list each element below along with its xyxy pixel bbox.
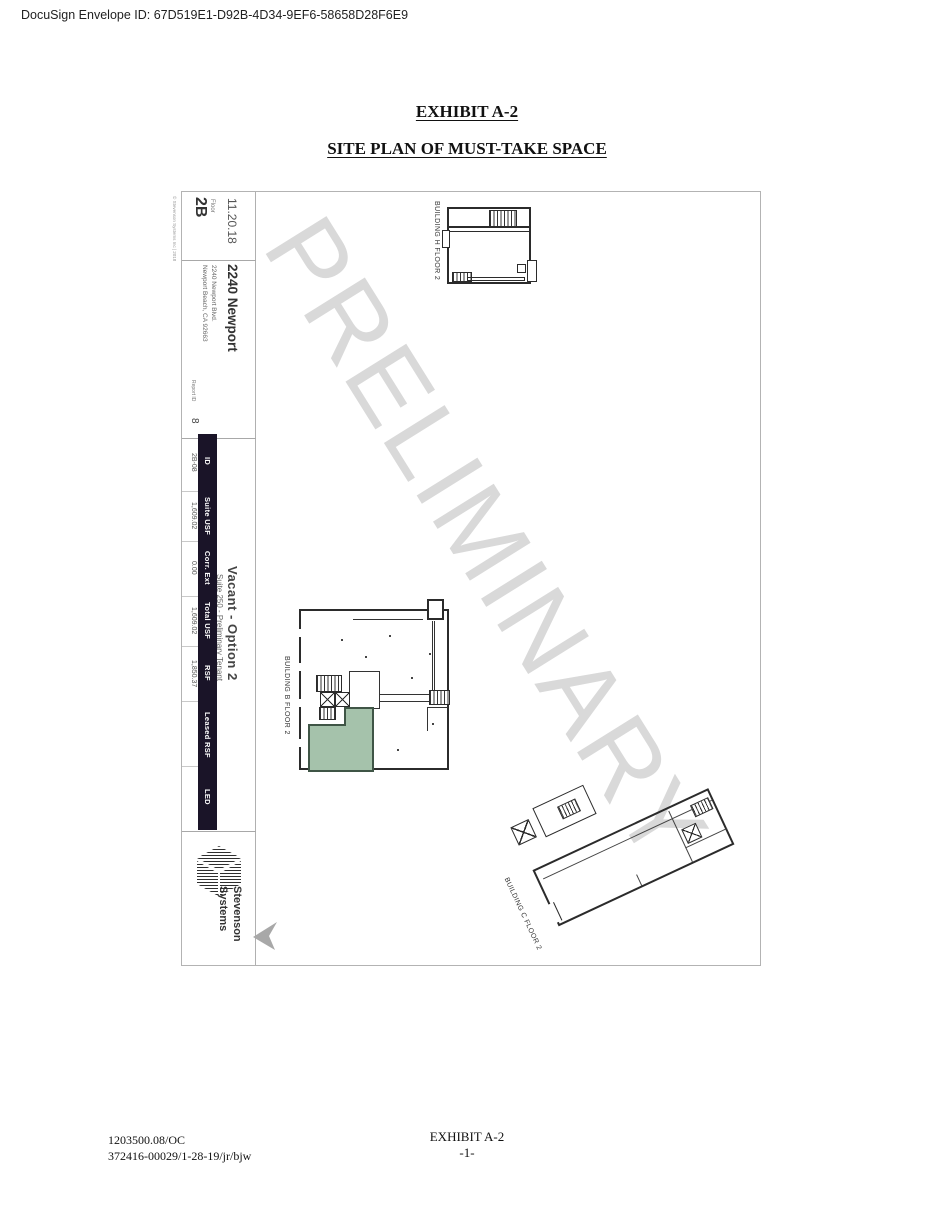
- column-dot: [429, 653, 431, 655]
- building-c-wall-tick: [636, 874, 642, 885]
- building-c-label: BUILDING C FLOOR 2: [503, 877, 543, 952]
- facade-notch: [299, 699, 304, 707]
- building-b-corridor-wall: [380, 694, 430, 695]
- table-row-divider: [182, 596, 198, 597]
- table-row-divider: [182, 766, 198, 767]
- option-title: Vacant - Option 2: [226, 566, 239, 681]
- col-header-total-usf: Total USF: [204, 602, 212, 639]
- col-header-leased-rsf: Leased RSF: [204, 712, 212, 758]
- col-header-corr-ext: Corr. Ext: [204, 551, 212, 585]
- building-name: 2240 Newport: [226, 264, 240, 352]
- building-b-stair: [429, 690, 450, 705]
- docusign-envelope-id: DocuSign Envelope ID: 67D519E1-D92B-4D34…: [21, 8, 408, 22]
- stevenson-systems-logo-icon: [196, 845, 242, 897]
- building-c-wing: [532, 785, 596, 838]
- cell-corr-ext: 0.00: [190, 561, 197, 575]
- preliminary-watermark: PRELIMINARY: [240, 197, 731, 884]
- address-line2: Newport Beach, CA 92663: [201, 265, 208, 342]
- column-dot: [432, 723, 434, 725]
- sheet-date: 11.20.18: [226, 198, 238, 244]
- col-header-id: ID: [204, 457, 212, 465]
- building-b-corridor-vertical: [432, 621, 435, 691]
- address-line1: 2240 Newport Blvd.: [210, 265, 217, 322]
- section-divider: [182, 831, 256, 832]
- building-c-left-notch: [548, 902, 563, 923]
- titleblock-divider: [255, 192, 256, 965]
- column-dot: [397, 749, 399, 751]
- floor-value: 2B: [192, 197, 208, 217]
- building-b-plan: [299, 609, 449, 770]
- table-row-divider: [182, 646, 198, 647]
- building-h-stair: [489, 210, 517, 227]
- col-header-led: LED: [204, 789, 212, 805]
- facade-notch: [299, 663, 304, 671]
- table-row-divider: [182, 701, 198, 702]
- footer-center: EXHIBIT A-2 -1-: [0, 1129, 934, 1161]
- building-b-corridor-wall: [380, 701, 430, 702]
- report-id-label: Report ID: [190, 380, 195, 401]
- building-b-top-band: [353, 615, 423, 620]
- cell-suite-usf: 1,609.02: [190, 502, 197, 529]
- building-h-bottom-strip: [467, 277, 525, 281]
- building-b-roof-box: [427, 599, 444, 620]
- building-b-rooms: [427, 707, 448, 731]
- building-b-must-take-suite: [308, 705, 376, 773]
- building-h-room: [517, 264, 526, 273]
- col-header-rsf: RSF: [204, 665, 212, 681]
- facade-notch: [299, 629, 304, 637]
- column-dot: [365, 656, 367, 658]
- table-row-divider: [182, 541, 198, 542]
- table-row-divider: [182, 491, 198, 492]
- floor-label: Floor: [209, 199, 215, 213]
- col-header-suite-usf: Suite USF: [204, 497, 212, 535]
- cell-total-usf: 1,609.02: [190, 607, 197, 634]
- section-divider: [182, 438, 256, 439]
- building-b-stair: [316, 675, 342, 692]
- building-b-label: BUILDING B FLOOR 2: [283, 656, 290, 735]
- building-c-elevator: [510, 819, 537, 846]
- north-arrow-icon: [252, 921, 278, 951]
- building-h-corridor-line: [449, 231, 529, 232]
- site-plan-heading: SITE PLAN OF MUST-TAKE SPACE: [0, 139, 934, 159]
- building-h-left-notch: [442, 230, 450, 248]
- column-dot: [411, 677, 413, 679]
- document-page: DocuSign Envelope ID: 67D519E1-D92B-4D34…: [0, 0, 934, 1208]
- report-id-value: 8: [189, 418, 199, 424]
- cell-rsf: 1,850.37: [190, 660, 197, 687]
- building-h-right-appendix: [527, 260, 537, 282]
- column-dot: [341, 639, 343, 641]
- footer-exhibit-label: EXHIBIT A-2: [0, 1129, 934, 1145]
- site-plan-sheet: PRELIMINARY 11.20.18 Floor 2B 2240 Newpo…: [181, 191, 761, 966]
- cell-id: 2B-08: [190, 453, 197, 472]
- copyright-side-note: © Stevenson Systems Inc | 2018: [172, 196, 177, 261]
- building-h-plan: [447, 207, 531, 284]
- column-dot: [389, 635, 391, 637]
- facade-notch: [299, 739, 304, 747]
- building-h-label: BUILDING H FLOOR 2: [433, 201, 440, 280]
- footer-page-number: -1-: [0, 1145, 934, 1161]
- exhibit-heading: EXHIBIT A-2: [0, 102, 934, 122]
- building-c-wing-stair: [557, 798, 581, 819]
- building-b-core: [349, 671, 380, 709]
